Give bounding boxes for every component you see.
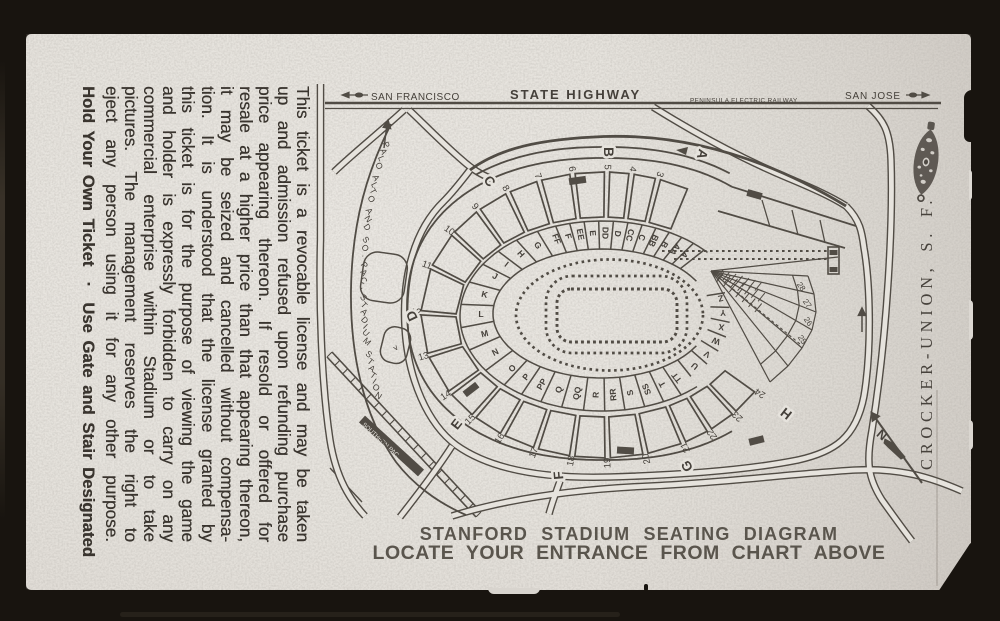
svg-text:6: 6	[566, 166, 578, 173]
svg-text:I: I	[503, 259, 511, 268]
svg-text:X: X	[717, 322, 725, 333]
svg-text:27: 27	[801, 297, 814, 310]
svg-text:V: V	[702, 348, 712, 360]
svg-text:U: U	[689, 360, 700, 372]
svg-text:QQ: QQ	[571, 385, 584, 400]
svg-text:SS: SS	[640, 382, 654, 397]
svg-text:T: T	[656, 379, 668, 389]
svg-text:3: 3	[653, 170, 665, 178]
svg-text:v: v	[391, 343, 399, 353]
svg-text:FF: FF	[550, 232, 563, 245]
svg-text:B: B	[601, 147, 616, 157]
svg-text:Y: Y	[720, 308, 726, 318]
svg-text:M: M	[480, 328, 489, 339]
svg-text:SAN FRANCISCO: SAN FRANCISCO	[371, 92, 460, 103]
svg-text:E: E	[588, 230, 598, 237]
svg-text:4: 4	[627, 166, 639, 173]
svg-text:D: D	[613, 230, 624, 237]
svg-text:F: F	[551, 471, 567, 481]
svg-text:SAN JOSE: SAN JOSE	[845, 91, 901, 102]
svg-text:B: B	[659, 239, 671, 249]
svg-text:19: 19	[602, 457, 613, 468]
svg-text:EE: EE	[575, 228, 587, 241]
svg-text:G: G	[532, 240, 544, 251]
svg-text:SOUTHERN PAC.: SOUTHERN PAC.	[361, 422, 401, 460]
svg-text:PENINSULA ELECTRIC RAILWAY: PENINSULA ELECTRIC RAILWAY	[690, 98, 798, 105]
svg-text:N: N	[490, 346, 500, 358]
svg-text:BB: BB	[647, 233, 661, 249]
svg-text:TT: TT	[669, 370, 684, 385]
svg-text:J: J	[491, 270, 500, 281]
svg-text:H: H	[515, 248, 527, 259]
svg-text:28: 28	[795, 280, 808, 293]
svg-text:W: W	[710, 335, 722, 347]
svg-text:S: S	[624, 389, 635, 397]
svg-text:7: 7	[531, 172, 543, 181]
svg-text:24: 24	[753, 385, 768, 400]
svg-text:10: 10	[442, 223, 457, 238]
svg-text:R: R	[591, 391, 601, 399]
svg-text:K: K	[480, 289, 489, 300]
svg-text:23: 23	[730, 408, 745, 423]
svg-text:F: F	[563, 232, 574, 240]
svg-text:H: H	[778, 405, 795, 423]
svg-text:5: 5	[602, 164, 613, 170]
svg-text:18: 18	[565, 455, 578, 467]
svg-text:Q: Q	[553, 384, 565, 394]
svg-text:STATE HIGHWAY: STATE HIGHWAY	[510, 87, 641, 102]
svg-text:RR: RR	[607, 387, 618, 401]
svg-text:DD: DD	[600, 227, 610, 240]
svg-text:C: C	[636, 233, 647, 242]
svg-text:9: 9	[469, 201, 481, 212]
svg-text:L: L	[478, 309, 483, 319]
